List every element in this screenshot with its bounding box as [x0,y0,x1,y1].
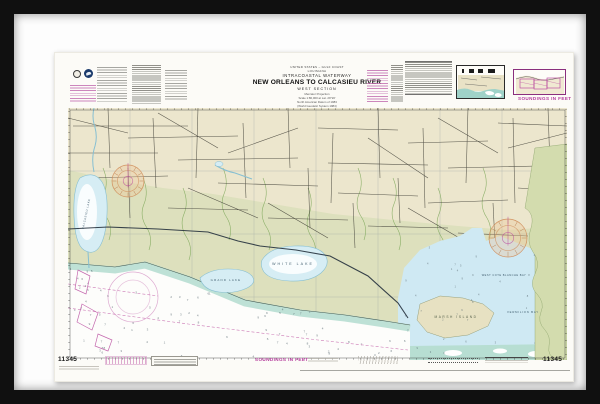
stamp-block [358,356,398,364]
label-west-cote-blanche-bay: WEST COTE BLANCHE BAY [482,273,527,277]
label-marsh-island: MARSH ISLAND [434,315,477,319]
chart-number-left: 11345 [58,356,77,363]
note-block [391,65,403,103]
noaa-logo-icon [84,69,93,78]
note-block [165,70,187,100]
micro-text-line [59,366,99,370]
chart-map: 9737818656841376344674366761156563372241… [68,108,567,360]
chart-title-block: UNITED STATES – GULF COAST LOUISIANA INT… [247,65,387,109]
tide-table-block [405,61,452,95]
note-block [132,65,161,105]
dash-note-block [485,357,528,363]
fine-print-line [300,370,570,372]
chart-title: NEW ORLEANS TO CALCASIEU RIVER [247,79,387,87]
soundings-note-top: SOUNDINGS IN FEET [518,96,572,101]
magenta-note-block [70,85,96,102]
soundings-note-bottom: SOUNDINGS IN FEET [255,357,309,362]
picture-mat: UNITED STATES – GULF COAST LOUISIANA INT… [14,14,586,390]
note-block [97,67,127,103]
label-vermilion-bay: VERMILION BAY [507,310,539,314]
magenta-stamp-block [105,356,147,365]
chart-index-inset-map [513,69,566,95]
dotted-leader-block [428,355,478,367]
coast-continuation-inset-map [456,65,505,99]
label-grand-lake: GRAND LAKE [211,278,242,282]
chart-number-right: 11345 [543,356,562,363]
chart-paper: UNITED STATES – GULF COAST LOUISIANA INT… [54,52,574,382]
label-white-lake: WHITE LAKE [272,262,314,266]
agency-seal-icon [73,70,81,78]
boxed-note [151,356,198,366]
framed-chart-photo: UNITED STATES – GULF COAST LOUISIANA INT… [0,0,600,404]
magenta-note-block [367,70,388,103]
micro-text-line [308,358,338,363]
